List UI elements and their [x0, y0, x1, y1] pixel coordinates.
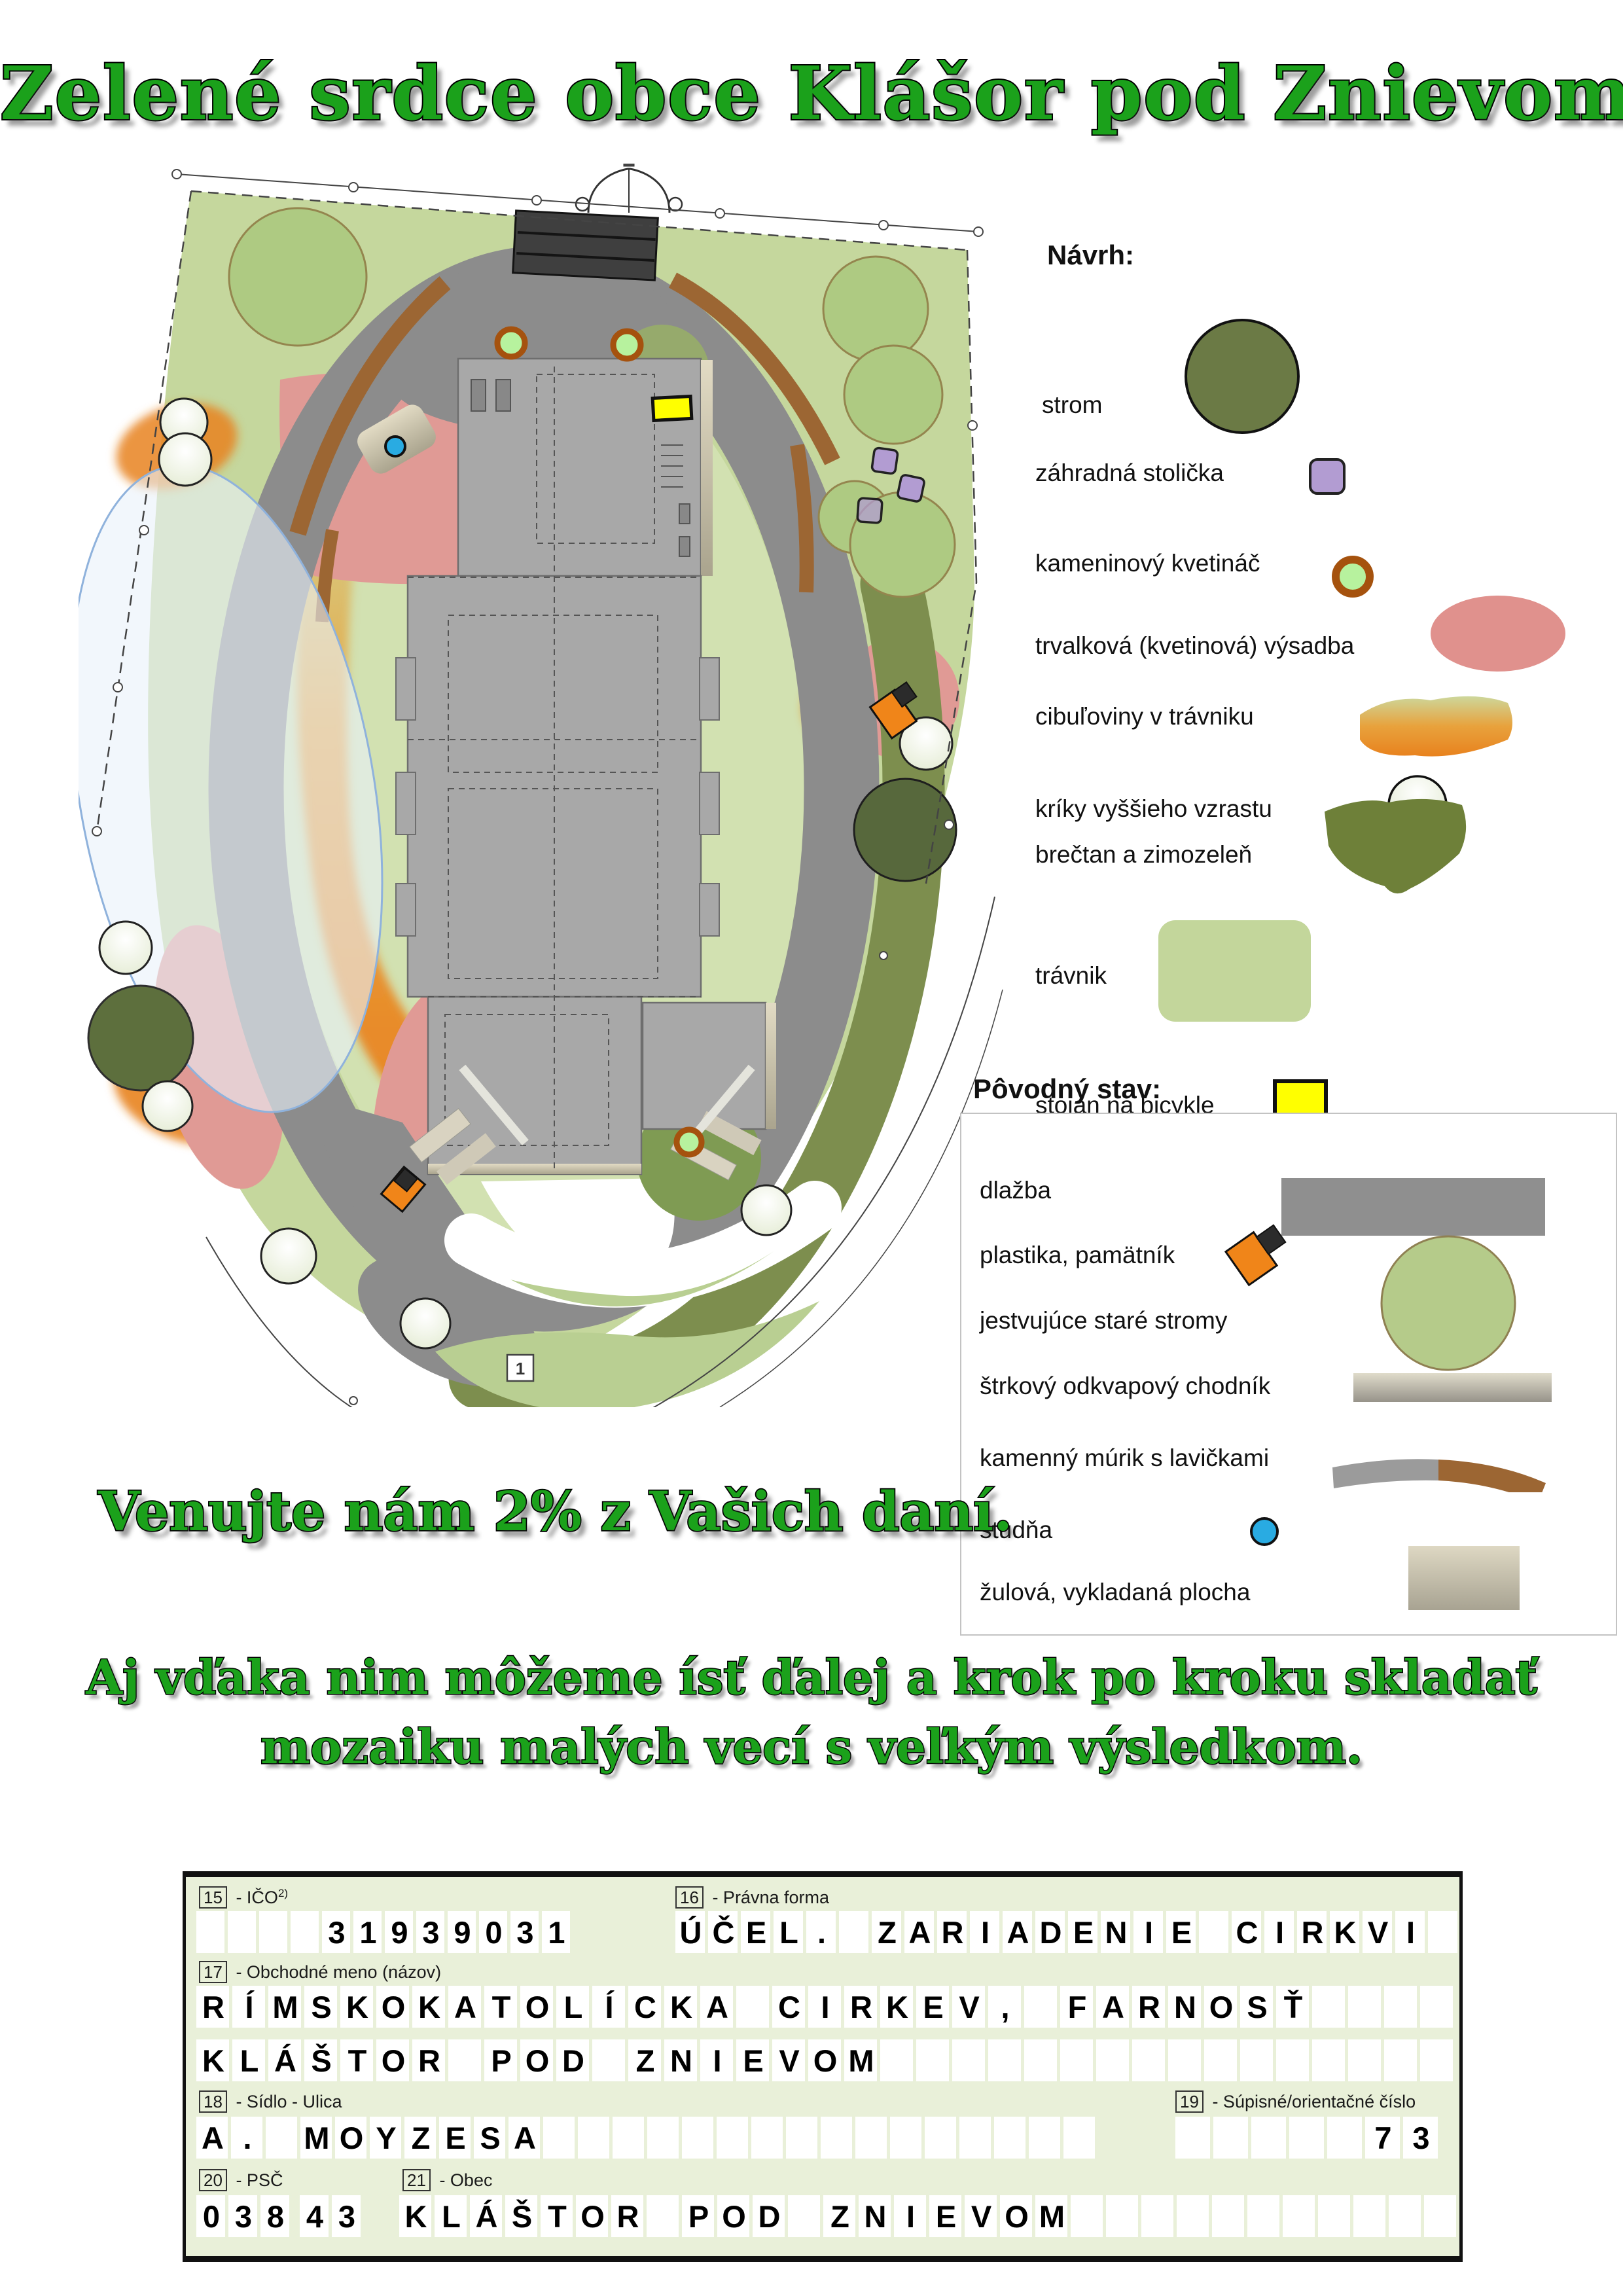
garden-plan-map: 1	[79, 164, 1008, 1407]
legend-label-brectan: brečtan a zimozeleň	[1035, 841, 1252, 869]
tree-circle-icon	[1182, 316, 1302, 437]
memorial-icon	[1222, 1219, 1298, 1289]
field-number-obec: 21	[402, 2169, 431, 2191]
field-label-obchodne-meno: 17 - Obchodné meno (názov)	[199, 1961, 441, 1983]
field-label-psc: 20 - PSČ	[199, 2169, 283, 2191]
legend-label-cibulloviny: cibuľoviny v trávniku	[1035, 703, 1254, 730]
field-label-ico: 15 - IČO2)	[199, 1886, 288, 1909]
garden-plan-drawing: 1	[79, 164, 1008, 1407]
slogan-secondary-line2: mozaiku malých vecí s veľkým výsledkom.	[0, 1719, 1623, 1774]
field-number-psc: 20	[199, 2169, 227, 2191]
legend-povodny-title: Pôvodný stav:	[973, 1073, 1161, 1105]
legend-label-zulova: žulová, vykladaná plocha	[980, 1579, 1250, 1606]
new-tree	[88, 986, 193, 1090]
legend-label-trvalkova: trvalková (kvetinová) výsadba	[1035, 632, 1354, 660]
field-number-pravna-forma: 16	[675, 1886, 704, 1909]
svg-text:1: 1	[516, 1359, 525, 1378]
legend-label-travnik: trávnik	[1035, 962, 1107, 990]
legend-label-murik: kamenný múrik s lavičkami	[980, 1444, 1269, 1472]
obchodne-meno-field-line2[interactable]: KLÁŠTORPODZNIEVOM	[196, 2039, 1456, 2081]
plan-marker: 1	[507, 1355, 533, 1381]
old-tree-icon	[1378, 1233, 1518, 1373]
tax-form: 15 - IČO2) 16 - Právna forma 31939031 ÚČ…	[183, 1871, 1463, 2262]
field-label-obec: 21 - Obec	[402, 2169, 492, 2191]
field-number-ulica: 18	[199, 2090, 227, 2113]
slogan-secondary-line1: Aj vďaka nim môžeme ísť ďalej a krok po …	[0, 1649, 1623, 1705]
ico-field[interactable]: 31939031	[196, 1911, 573, 1953]
pravna-forma-field[interactable]: ÚČEL.ZARIADENIECIRKVI	[675, 1911, 1461, 1953]
legend-label-stare-stromy: jestvujúce staré stromy	[980, 1307, 1227, 1335]
obec-field[interactable]: KLÁŠTORPODZNIEVOM	[399, 2195, 1459, 2237]
ulica-field[interactable]: A.MOYZESA	[196, 2117, 1098, 2159]
lawn-icon	[1158, 920, 1311, 1022]
legend-label-stolicka: záhradná stolička	[1035, 459, 1224, 487]
field-label-cislo: 19 - Súpisné/orientačné číslo	[1175, 2090, 1416, 2113]
bulbs-blob-icon	[1352, 685, 1520, 764]
granite-area-icon	[1408, 1546, 1520, 1610]
psc-field[interactable]: 03843	[196, 2195, 364, 2237]
gate	[576, 164, 682, 213]
legend-label-kriky: kríky vyššieho vzrastu	[1035, 795, 1272, 823]
stone-wall-icon	[1329, 1433, 1551, 1492]
perennial-bed-icon	[1428, 593, 1568, 674]
ivy-blob-icon	[1317, 791, 1474, 906]
flower-pot-icon	[1329, 552, 1377, 601]
field-label-ulica: 18 - Sídlo - Ulica	[199, 2090, 342, 2113]
slogan-primary: Venujte nám 2% z Vašich daní.	[98, 1480, 1012, 1543]
field-number-ico: 15	[199, 1886, 227, 1909]
legend-label-strkovy: štrkový odkvapový chodník	[980, 1372, 1270, 1400]
legend-navrh-title: Návrh:	[1047, 240, 1134, 271]
bike-stand	[652, 396, 692, 420]
obchodne-meno-field-line1[interactable]: RÍMSKOKATOLÍCKACIRKEV,FARNOSŤ	[196, 1986, 1456, 2028]
paving-icon	[1281, 1178, 1545, 1236]
cislo-field[interactable]: 73	[1175, 2117, 1441, 2159]
garden-chair-icon	[1308, 457, 1347, 496]
field-number-obchodne-meno: 17	[199, 1961, 227, 1983]
legend-label-plastika: plastika, pamätník	[980, 1242, 1175, 1269]
legend-label-kvetinac: kameninový kvetináč	[1035, 550, 1260, 577]
legend-label-strom: strom	[1042, 391, 1103, 419]
legend-label-dlazba: dlažba	[980, 1177, 1051, 1204]
field-label-pravna-forma: 16 - Právna forma	[675, 1886, 829, 1909]
page-title: Zelené srdce obce Klášor pod Znievom	[0, 51, 1623, 137]
field-number-cislo: 19	[1175, 2090, 1204, 2113]
gravel-walk-icon	[1353, 1373, 1552, 1402]
well-icon	[1247, 1515, 1281, 1549]
